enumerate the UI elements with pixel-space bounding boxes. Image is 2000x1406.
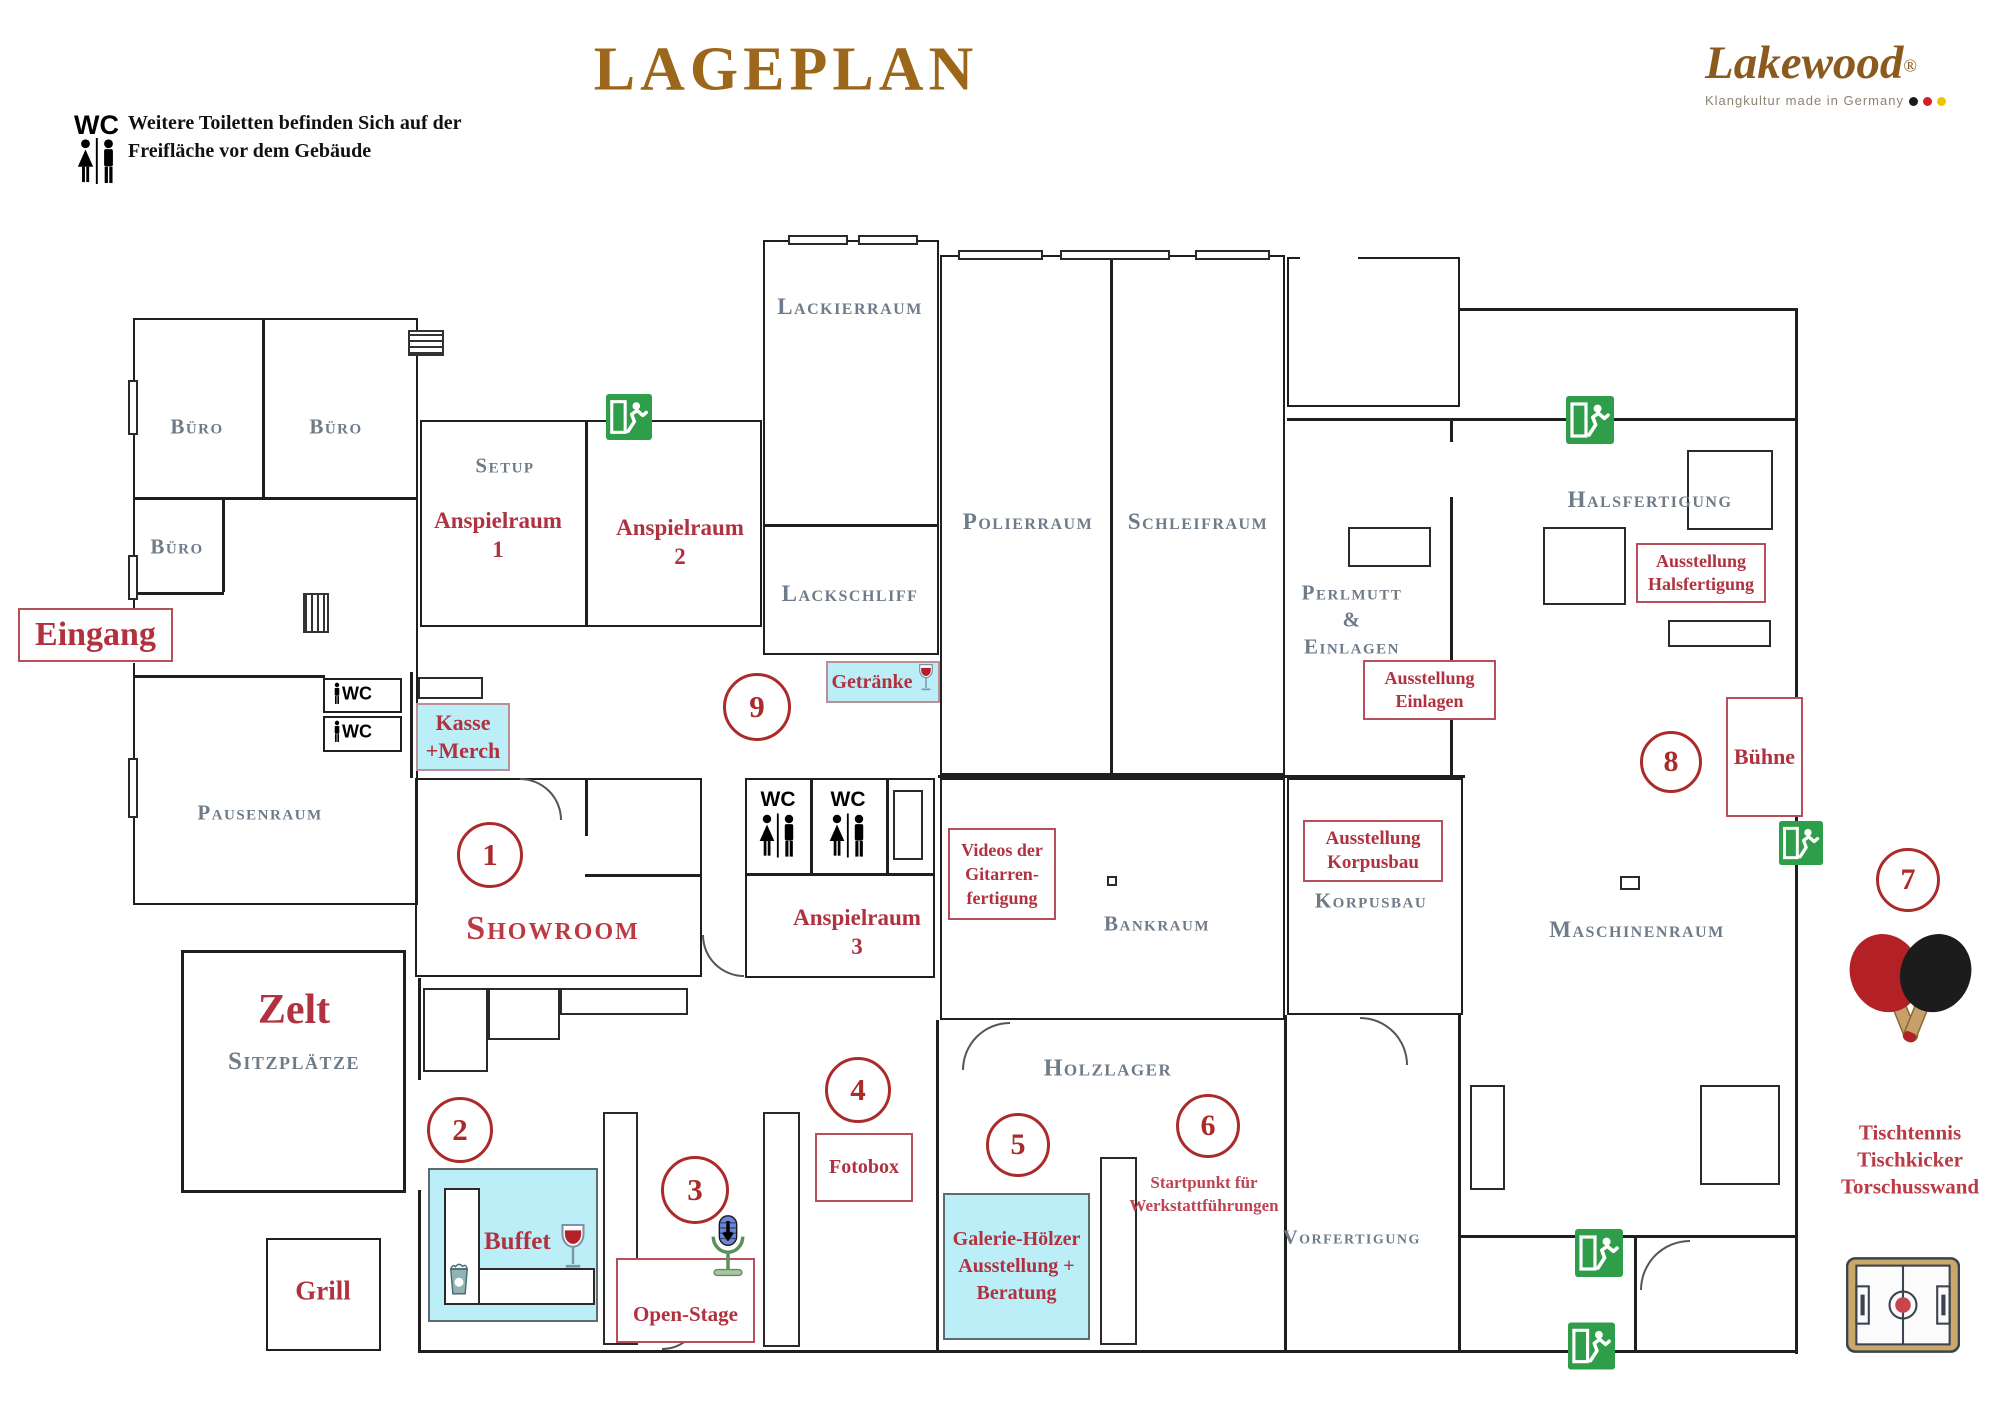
window [788, 235, 848, 245]
grill-label: Grill [295, 1276, 351, 1307]
wc-persons-icon [756, 814, 800, 863]
label-line: Startpunkt für [1129, 1171, 1278, 1194]
label-line: Einlagen [1395, 690, 1463, 713]
station-circle-9: 9 [723, 673, 791, 741]
wall [936, 1020, 939, 1352]
wall [745, 873, 935, 876]
label-line: Anspielraum [616, 513, 744, 542]
wall [410, 672, 413, 778]
wc-legend-persons-icon [74, 138, 120, 189]
window [858, 235, 918, 245]
wall [1458, 1015, 1461, 1352]
anspielraum3-label: Anspielraum 3 [793, 903, 921, 961]
wc-note-line2: Freifläche vor dem Gebäude [128, 140, 371, 163]
door-gap [1448, 442, 1455, 497]
window [128, 758, 138, 818]
table-tennis-paddles-icon [1833, 933, 1988, 1060]
double-door-gap [1300, 254, 1358, 261]
label-line: Torschusswand [1841, 1174, 1979, 1201]
label-line: 1 [434, 535, 562, 564]
startpunkt-label: Startpunkt für Werkstattführungen [1129, 1171, 1278, 1217]
wall [1284, 1015, 1287, 1352]
station-number: 1 [482, 837, 498, 873]
fotobox-box: Fotobox [815, 1133, 913, 1202]
label-line: Halsfertigung [1648, 573, 1754, 596]
room-label-vorfertigung: Vorfertigung [1283, 1227, 1421, 1250]
label-line: Bühne [1734, 744, 1795, 770]
wall [133, 675, 325, 678]
label-line: Perlmutt [1302, 580, 1403, 607]
door-arc [1640, 1240, 1690, 1290]
label-line: Anspielraum [434, 506, 562, 535]
galerie-hoelzer-box: Galerie-Hölzer Ausstellung + Beratung [943, 1193, 1090, 1340]
wall [585, 420, 588, 627]
wc-stall-label: WC [332, 683, 372, 710]
top-right-room-outline [1287, 257, 1460, 407]
showroom-label: Showroom [466, 910, 640, 948]
label-line: Korpusbau [1327, 851, 1419, 875]
ausstellung-einlagen-box: Ausstellung Einlagen [1363, 660, 1496, 720]
buffet-area: Buffet [428, 1168, 598, 1322]
door-arc [962, 1022, 1010, 1070]
label-line: Fotobox [829, 1156, 899, 1179]
buffet-label: Buffet [484, 1228, 551, 1256]
label-line: Ausstellung [1384, 667, 1474, 690]
tischtennis-label: Tischtennis Tischkicker Torschusswand [1841, 1120, 1979, 1201]
room-label-perlmutt-einlagen: Perlmutt & Einlagen [1302, 580, 1403, 661]
wall [133, 497, 418, 500]
wc-legend-badge: WC [74, 110, 119, 141]
room-label-schleifraum: Schleifraum [1128, 509, 1268, 535]
station-number: 6 [1201, 1109, 1216, 1143]
wall [1287, 418, 1798, 421]
wc-note-line1: Weitere Toiletten befinden Sich auf der [128, 112, 462, 135]
room-label-halsfertigung: Halsfertigung [1568, 487, 1733, 513]
closet [893, 790, 923, 860]
room-label-holzlager: Holzlager [1044, 1056, 1173, 1083]
workbench [1543, 527, 1626, 605]
wc-text: WC [342, 684, 372, 704]
radiator-icon [408, 330, 444, 356]
furniture [560, 988, 688, 1015]
logo-registered-mark: ® [1903, 56, 1917, 76]
room-label-bankraum: Bankraum [1104, 912, 1210, 937]
eingang-label: Eingang [18, 608, 173, 662]
label-line: +Merch [426, 737, 500, 765]
room-label-lackschliff: Lackschliff [782, 581, 919, 607]
microphone-icon [702, 1214, 754, 1299]
station-circle-4: 4 [825, 1057, 891, 1123]
anspielraum2-label: Anspielraum 2 [616, 513, 744, 571]
station-number: 9 [749, 689, 765, 725]
emergency-exit-icon [606, 394, 652, 445]
station-number: 5 [1011, 1128, 1026, 1162]
wine-glass-icon [917, 663, 935, 701]
label-line: Beratung [977, 1280, 1057, 1307]
ausstellung-korpusbau-box: Ausstellung Korpusbau [1303, 820, 1443, 882]
pillar [763, 1112, 800, 1347]
wall [585, 874, 700, 877]
workbench [1700, 1085, 1780, 1185]
station-circle-2: 2 [427, 1097, 493, 1163]
door-arc [1360, 1017, 1408, 1065]
lakewood-logo: Lakewood® Klangkultur made in Germany [1705, 36, 1965, 110]
workbench [1668, 620, 1771, 647]
label-line: Gitarren- [965, 862, 1039, 886]
label-line: Kasse [436, 709, 491, 737]
workbench [1107, 876, 1117, 886]
label-line: fertigung [967, 886, 1038, 910]
logo-dot-red [1923, 97, 1932, 106]
emergency-exit-icon [1575, 1228, 1623, 1283]
emergency-exit-icon [1568, 1322, 1615, 1375]
station-circle-5: 5 [986, 1113, 1050, 1177]
page-title: LAGEPLAN [594, 35, 978, 106]
label-line: Open-Stage [633, 1302, 738, 1327]
window [128, 555, 138, 600]
person-icon [332, 692, 342, 709]
popcorn-icon [447, 1262, 471, 1300]
door-gap [416, 1080, 423, 1190]
window [958, 250, 1043, 260]
label-line: & [1302, 607, 1403, 634]
room-label-polierraum: Polierraum [963, 509, 1093, 535]
logo-tagline: Klangkultur made in Germany [1705, 93, 1904, 108]
label-line: Ausstellung [1325, 827, 1420, 851]
counter [418, 677, 483, 699]
stairs-icon [303, 593, 329, 633]
station-number: 7 [1901, 863, 1916, 897]
pillar [1470, 1085, 1505, 1190]
room-label-setup: Setup [475, 454, 534, 479]
wall [1110, 255, 1113, 775]
station-number: 8 [1664, 745, 1679, 779]
wc-text: WC [342, 722, 372, 742]
label-line: Getränke [831, 671, 912, 694]
wall [133, 592, 224, 595]
workbench [1348, 527, 1431, 567]
logo-dot-gold [1937, 97, 1946, 106]
label-line: Werkstattführungen [1129, 1194, 1278, 1217]
kasse-merch-box: Kasse +Merch [416, 703, 510, 771]
foosball-table-icon [1846, 1256, 1960, 1359]
label-line: Videos der [961, 838, 1043, 862]
anspielraum1-label: Anspielraum 1 [434, 506, 562, 564]
door-arc [702, 935, 744, 977]
station-number: 3 [687, 1172, 703, 1208]
station-number: 2 [452, 1112, 468, 1148]
label-line: 3 [793, 932, 921, 961]
room-label-buero-1: Büro [170, 415, 223, 440]
furniture [423, 988, 488, 1072]
emergency-exit-icon [1566, 396, 1614, 449]
room-label-buero-2: Büro [309, 415, 362, 440]
label-line: Tischkicker [1841, 1147, 1979, 1174]
label-line: Tischtennis [1841, 1120, 1979, 1147]
videos-gitarrenfertigung-box: Videos der Gitarren- fertigung [948, 828, 1056, 920]
label-line: Einlagen [1302, 634, 1403, 661]
wc-persons-icon [826, 814, 870, 863]
room-label-sitzplaetze: Sitzplätze [228, 1048, 360, 1076]
room-label-maschinenraum: Maschinenraum [1549, 917, 1724, 943]
window [128, 380, 138, 435]
label-line: Ausstellung [1656, 550, 1746, 573]
wall [810, 778, 813, 875]
label-line: 2 [616, 542, 744, 571]
station-number: 4 [850, 1072, 866, 1108]
window [1060, 250, 1170, 260]
workbench [1620, 876, 1640, 890]
station-circle-8: 8 [1640, 731, 1702, 793]
wc-stall-label: WC [332, 721, 372, 748]
ausstellung-halsfertigung-box: Ausstellung Halsfertigung [1636, 543, 1766, 603]
emergency-exit-icon [1779, 818, 1823, 873]
wall [1634, 1238, 1637, 1352]
wc-room-label: WC [761, 788, 796, 812]
label-line: Galerie-Hölzer [953, 1226, 1081, 1253]
person-icon [332, 730, 342, 747]
label-line: Ausstellung + [958, 1253, 1074, 1280]
wall [763, 524, 939, 527]
wall [262, 318, 265, 499]
logo-name: Lakewood [1705, 37, 1903, 89]
furniture [488, 988, 560, 1040]
logo-dot-black [1909, 97, 1918, 106]
station-circle-1: 1 [457, 822, 523, 888]
station-circle-7: 7 [1876, 848, 1940, 912]
getraenke-box: Getränke [826, 661, 940, 703]
room-label-korpusbau: Korpusbau [1315, 889, 1427, 914]
wall [585, 778, 588, 836]
wc-room-label: WC [831, 788, 866, 812]
station-circle-6: 6 [1176, 1094, 1240, 1158]
wall [222, 497, 225, 592]
wall [1461, 1235, 1798, 1238]
room-label-buero-3: Büro [150, 535, 203, 560]
room-label-pausenraum: Pausenraum [197, 801, 322, 826]
zelt-label: Zelt [258, 986, 330, 1034]
buehne-box: Bühne [1726, 697, 1803, 817]
wall [1460, 308, 1798, 311]
room-label-lackierraum: Lackierraum [777, 294, 923, 320]
label-line: Eingang [35, 616, 156, 654]
wall [886, 778, 889, 875]
window [1195, 250, 1270, 260]
label-line: Anspielraum [793, 903, 921, 932]
wine-glass-icon [558, 1222, 588, 1281]
